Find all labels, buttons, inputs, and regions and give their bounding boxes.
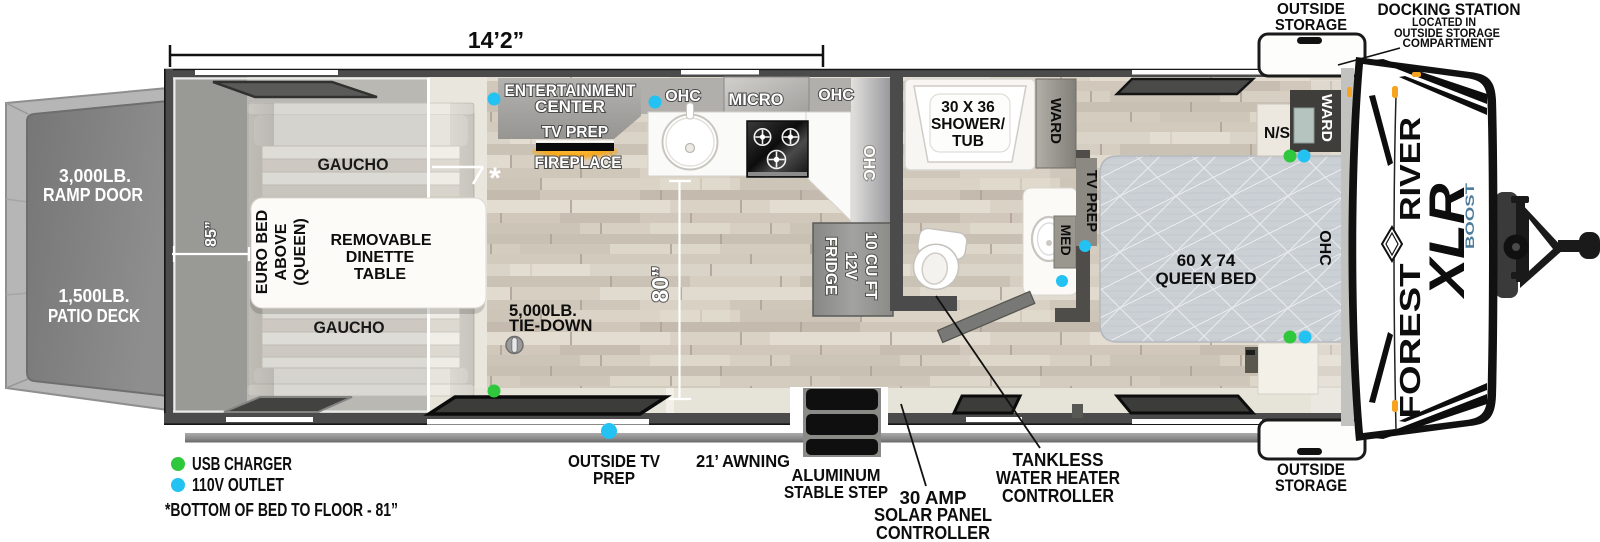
- svg-text:REMOVABLE: REMOVABLE: [330, 232, 431, 249]
- svg-text:TV PREP: TV PREP: [1083, 170, 1099, 232]
- svg-text:STORAGE: STORAGE: [1275, 17, 1347, 34]
- svg-text:WATER HEATER: WATER HEATER: [996, 468, 1120, 488]
- svg-text:110V OUTLET: 110V OUTLET: [192, 475, 284, 495]
- svg-text:DINETTE: DINETTE: [346, 249, 415, 266]
- svg-text:*BOTTOM OF BED TO FLOOR - 81”: *BOTTOM OF BED TO FLOOR - 81”: [165, 499, 398, 520]
- svg-text:TABLE: TABLE: [354, 266, 406, 283]
- svg-text:TV PREP: TV PREP: [542, 124, 608, 141]
- svg-text:CONTROLLER: CONTROLLER: [876, 523, 990, 542]
- svg-text:3,000LB.: 3,000LB.: [59, 166, 131, 186]
- svg-text:(QUEEN): (QUEEN): [292, 218, 309, 286]
- svg-text:OHC: OHC: [1316, 230, 1333, 266]
- svg-text:OHC: OHC: [818, 87, 854, 104]
- svg-text:BOOST: BOOST: [1463, 182, 1477, 249]
- svg-text:CONTROLLER: CONTROLLER: [1002, 486, 1114, 506]
- svg-text:RAMP DOOR: RAMP DOOR: [43, 185, 143, 205]
- svg-text:21’ AWNING: 21’ AWNING: [696, 451, 790, 471]
- svg-text:12V: 12V: [842, 252, 859, 280]
- svg-text:USB CHARGER: USB CHARGER: [192, 454, 292, 474]
- svg-text:PATIO DECK: PATIO DECK: [48, 306, 140, 326]
- svg-text:OUTSIDE: OUTSIDE: [1277, 1, 1345, 18]
- svg-text:85”: 85”: [203, 221, 220, 247]
- svg-text:FIREPLACE: FIREPLACE: [535, 154, 622, 172]
- svg-text:STORAGE: STORAGE: [1275, 477, 1347, 495]
- svg-text:TIE-DOWN: TIE-DOWN: [509, 317, 592, 335]
- svg-text:STABLE STEP: STABLE STEP: [784, 482, 888, 502]
- svg-text:1,500LB.: 1,500LB.: [59, 286, 130, 306]
- svg-text:FRIDGE: FRIDGE: [822, 237, 839, 296]
- svg-text:ABOVE: ABOVE: [273, 223, 290, 280]
- svg-text:QUEEN BED: QUEEN BED: [1155, 269, 1256, 288]
- svg-text:TUB: TUB: [952, 133, 984, 150]
- svg-text:PREP: PREP: [593, 468, 635, 488]
- svg-text:10 CU FT: 10 CU FT: [862, 232, 879, 300]
- svg-text:SHOWER/: SHOWER/: [931, 116, 1006, 133]
- svg-text:OHC: OHC: [665, 88, 701, 105]
- svg-text:80”: 80”: [647, 265, 673, 302]
- svg-text:SOLAR PANEL: SOLAR PANEL: [874, 505, 992, 525]
- svg-text:WARD: WARD: [1318, 94, 1335, 142]
- svg-text:*: *: [489, 162, 501, 195]
- svg-text:60 X 74: 60 X 74: [1177, 251, 1236, 270]
- svg-text:TANKLESS: TANKLESS: [1013, 450, 1104, 470]
- svg-text:OHC: OHC: [860, 145, 877, 181]
- svg-text:MICRO: MICRO: [729, 91, 784, 109]
- svg-text:14’2”: 14’2”: [468, 27, 524, 53]
- svg-text:N/S: N/S: [1264, 125, 1290, 142]
- svg-text:30 X 36: 30 X 36: [941, 99, 995, 116]
- svg-text:CENTER: CENTER: [535, 97, 605, 116]
- svg-text:WARD: WARD: [1047, 98, 1064, 144]
- svg-text:COMPARTMENT: COMPARTMENT: [1403, 36, 1495, 50]
- svg-text:MED: MED: [1058, 224, 1074, 255]
- svg-text:EURO BED: EURO BED: [254, 210, 271, 294]
